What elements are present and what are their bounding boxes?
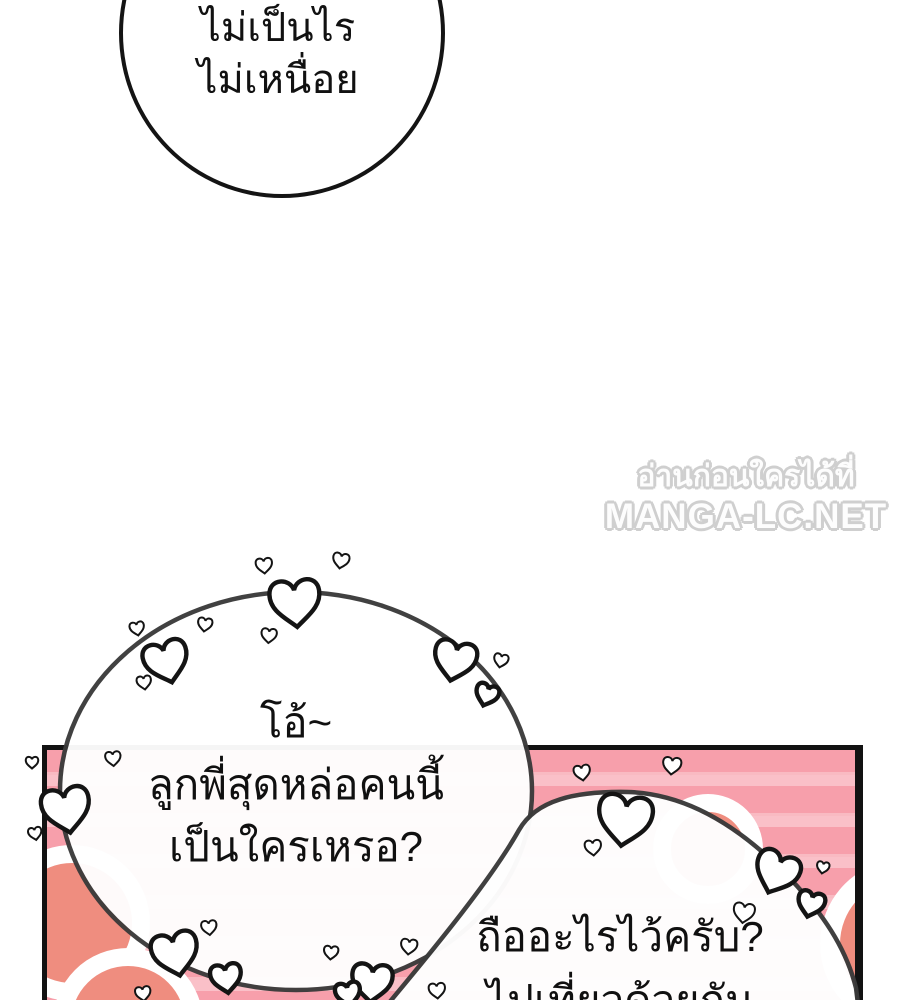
site-watermark: อ่านก่อนใครได้ที่ MANGA-LC.NET [598,456,894,536]
dialogue-line: ไปเที่ยวด้วยกัน [420,969,820,1000]
heart-icon [492,653,509,669]
speech-bubble-right-text: ถืออะไรไว้ครับ? ไปเที่ยวด้วยกัน [420,905,820,1000]
heart-icon [261,628,278,644]
heart-icon [268,578,322,629]
watermark-site-name: MANGA-LC.NET [598,498,894,536]
heart-icon [27,826,42,841]
heart-icon [197,617,213,632]
dialogue-line: ถืออะไรไว้ครับ? [420,905,820,969]
dialogue-line: โอ้~ [78,692,514,754]
dialogue-line: ลูกพี่สุดหล่อคนนี้ [78,754,514,816]
heart-icon [26,757,38,769]
watermark-thai-text: อ่านก่อนใครได้ที่ [598,456,894,498]
circle-pattern [653,794,763,904]
heart-icon [136,675,152,690]
heart-icon [430,637,480,684]
circle-pattern [820,859,863,1000]
dialogue-line: ไม่เป็นไร [120,2,436,54]
manga-page: ไม่เป็นไร ไม่เหนื่อย อ่านก่อนใครได้ที่ M… [0,0,900,1000]
heart-icon [331,552,350,570]
dialogue-line: เป็นใครเหรอ? [78,816,514,878]
heart-icon [255,558,273,575]
heart-icon [129,621,146,637]
heart-icon [140,637,193,688]
dialogue-line: ไม่เหนื่อย [120,54,436,106]
speech-bubble-top-text: ไม่เป็นไร ไม่เหนื่อย [120,2,436,106]
speech-bubble-left-text: โอ้~ ลูกพี่สุดหล่อคนนี้ เป็นใครเหรอ? [78,692,514,878]
